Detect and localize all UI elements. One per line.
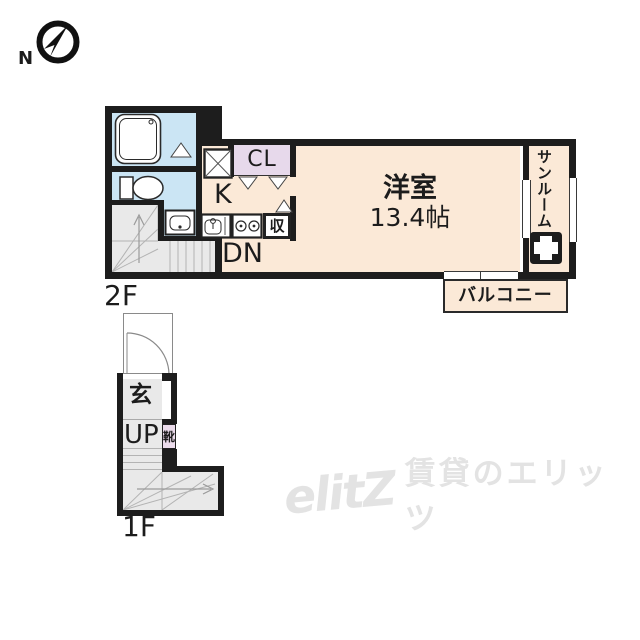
sliding-door-mullion [480, 271, 481, 279]
sunroom-label: サンルーム [536, 149, 551, 261]
door-triangle-storage [275, 199, 293, 213]
stairs-up-label: UP [124, 422, 159, 448]
floorplan-canvas: N [0, 0, 640, 640]
main-room-name: 洋室 [383, 175, 437, 202]
stair-tread-line [123, 455, 162, 456]
wall-duct-column [196, 106, 222, 146]
storage-label: 収 [269, 219, 284, 234]
kitchen-sink-icon [200, 213, 232, 239]
door-triangle-closet-2 [268, 176, 288, 190]
floor1-label: 1F [122, 513, 156, 541]
main-room-size: 13.4帖 [370, 205, 451, 230]
wall [105, 106, 112, 279]
wall-door-pocket [171, 381, 177, 423]
storage-box: 収 [263, 213, 291, 239]
wall [162, 373, 177, 381]
stairs-down-label: DN [222, 240, 263, 267]
compass-north-label: N [18, 50, 33, 68]
window-sunroom-right [569, 178, 577, 242]
shoe-cabinet-box: 靴 [162, 424, 176, 449]
mainroom-floor-lower [222, 238, 520, 272]
wall-closet-right [290, 145, 296, 177]
stairs-1f-winder [123, 472, 218, 510]
toilet-icon [118, 174, 166, 202]
vanity-basin-icon [164, 209, 196, 236]
entrance-door-arc-icon [123, 313, 173, 374]
balcony: バルコニー [443, 279, 568, 313]
door-triangle-closet-1 [238, 176, 258, 190]
shoe-cabinet-label: 靴 [163, 431, 175, 443]
watermark: elitZ 賃貸のエリッツ [284, 448, 640, 538]
refrigerator-space-icon [203, 148, 233, 179]
wall [162, 449, 177, 472]
closet-box: CL [234, 145, 290, 176]
main-room-label-group: 洋室 13.4帖 [330, 168, 490, 236]
stove-icon [231, 213, 263, 239]
watermark-brand: 賃貸のエリッツ [405, 448, 640, 538]
kitchen-label: K [214, 181, 232, 208]
wall [218, 466, 224, 516]
door-triangle-bath [170, 142, 192, 158]
window-sunroom-left [522, 180, 531, 238]
bathtub-icon [114, 113, 162, 165]
compass-icon [34, 18, 82, 68]
closet-label: CL [247, 149, 277, 171]
floor2-label: 2F [104, 282, 138, 310]
wall [108, 166, 198, 172]
entrance-label: 玄 [129, 384, 152, 407]
watermark-logo: elitZ [282, 461, 397, 525]
stair-tread-line [123, 469, 162, 470]
balcony-label: バルコニー [458, 287, 553, 305]
stair-tread-line [123, 462, 162, 463]
wall [215, 241, 222, 279]
